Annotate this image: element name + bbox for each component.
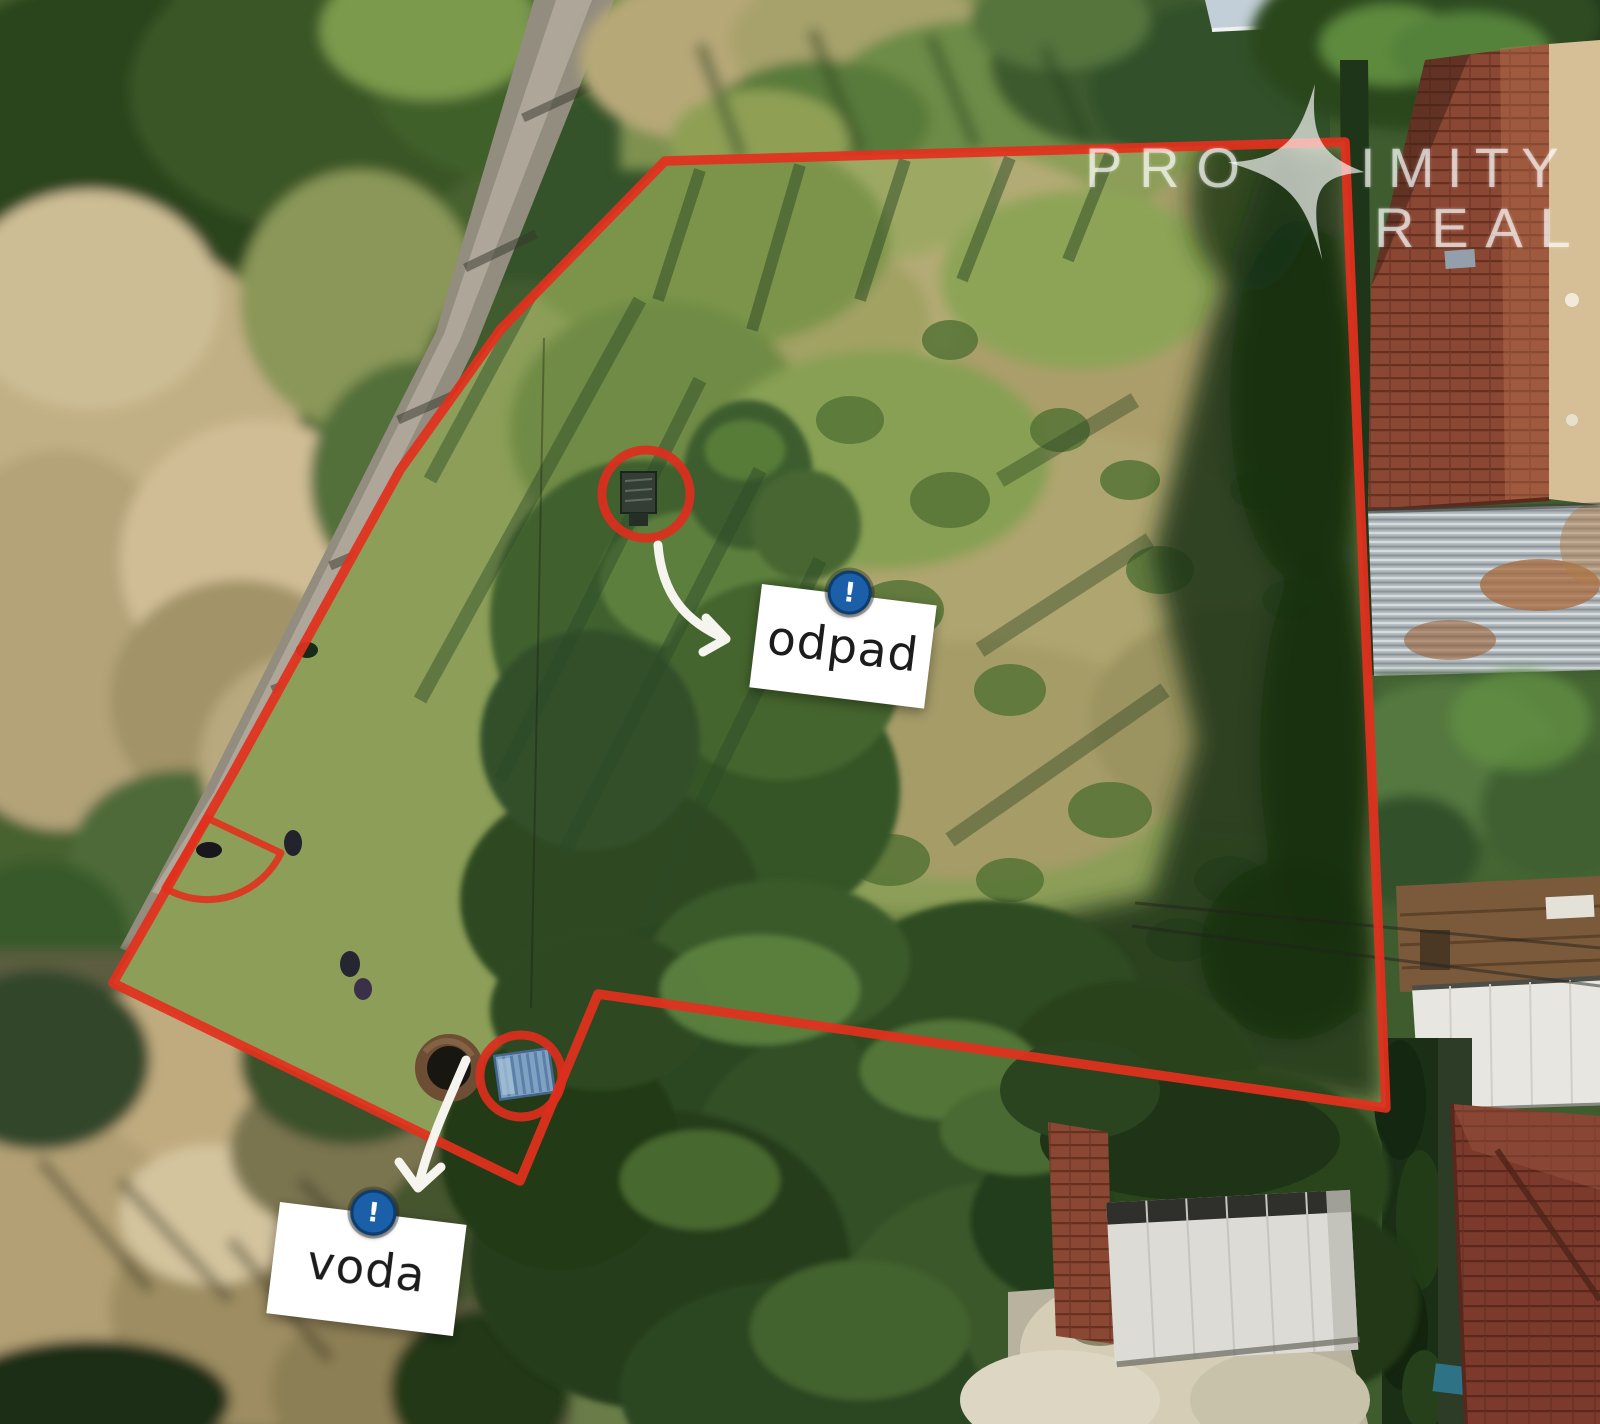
voda-label: ! voda	[266, 1202, 466, 1336]
watermark-text-real: REAL	[1374, 200, 1588, 256]
bottom-right-roof	[1452, 1104, 1600, 1424]
water-well	[421, 1040, 477, 1096]
aerial-photo: ! odpad ! voda PRO IMITY REAL	[0, 0, 1600, 1424]
voda-label-text: voda	[304, 1234, 429, 1303]
watermark-text-imity: IMITY	[1360, 140, 1571, 196]
well-cover	[494, 1048, 555, 1099]
odpad-label-text: odpad	[764, 610, 922, 683]
exclamation-glyph: !	[365, 1196, 381, 1228]
house-wall	[1549, 40, 1600, 505]
small-red-roof	[1048, 1122, 1114, 1344]
garage-roof	[1106, 1190, 1360, 1365]
corrugated-roof	[1368, 505, 1600, 676]
odpad-label: ! odpad	[749, 584, 936, 709]
exclamation-glyph: !	[842, 576, 858, 608]
fence-band	[1396, 876, 1600, 992]
